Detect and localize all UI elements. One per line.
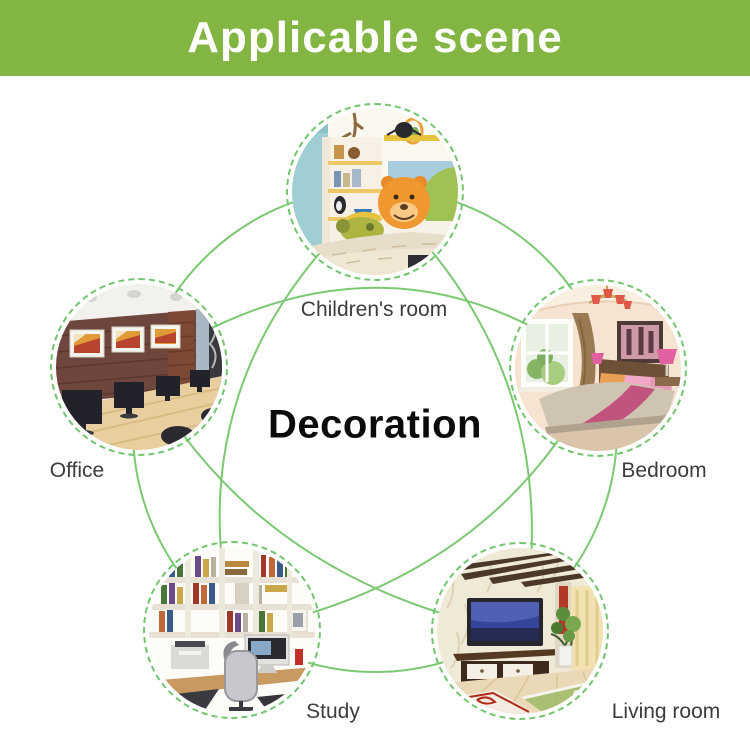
bedroom-photo — [515, 285, 681, 451]
center-title: Decoration — [268, 403, 482, 448]
label-bedroom: Bedroom — [621, 459, 706, 483]
label-study: Study — [306, 700, 360, 724]
red-cup — [295, 649, 303, 665]
label-living-room: Living room — [612, 700, 721, 724]
scene-circle-study — [143, 541, 321, 719]
study-photo — [149, 547, 315, 713]
page-title: Applicable scene — [187, 13, 562, 63]
living-room-photo — [437, 548, 603, 714]
scene-diagram: Children's room Bedroom Living room Stud… — [0, 76, 750, 750]
scene-circle-living-room — [431, 542, 609, 720]
scene-circle-office — [50, 278, 228, 456]
label-office: Office — [50, 459, 104, 483]
scene-circle-childrens-room — [286, 103, 464, 281]
printer — [171, 645, 209, 669]
childrens-room-photo — [292, 109, 458, 275]
header-banner: Applicable scene — [0, 0, 750, 76]
scene-circle-bedroom — [509, 279, 687, 457]
television — [467, 598, 543, 646]
bee-toy — [395, 122, 413, 138]
office-photo — [56, 284, 222, 450]
label-childrens-room: Children's room — [301, 298, 447, 322]
